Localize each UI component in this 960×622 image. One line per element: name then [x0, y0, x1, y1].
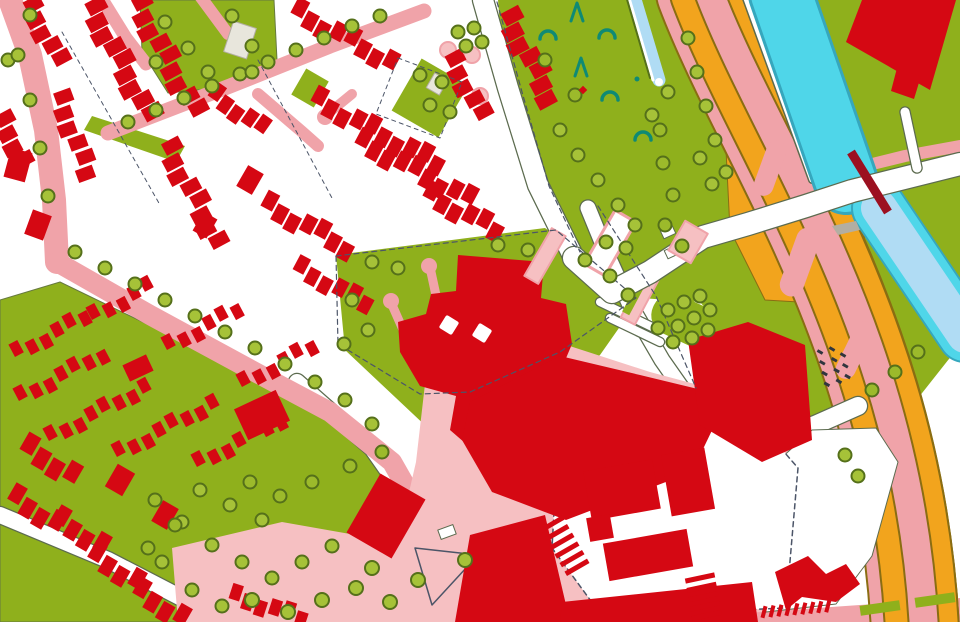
tree-icon: [246, 40, 259, 53]
tree-icon: [346, 294, 359, 307]
tree-icon: [346, 20, 359, 33]
tree-icon: [344, 460, 357, 473]
tree-icon: [24, 9, 37, 22]
tree-icon: [129, 278, 142, 291]
tree-icon: [366, 418, 379, 431]
tree-icon: [309, 376, 322, 389]
tree-icon: [219, 326, 232, 339]
tree-icon: [554, 124, 567, 137]
tree-icon: [411, 573, 425, 587]
tree-icon: [652, 322, 665, 335]
tree-icon: [579, 254, 592, 267]
tree-icon: [206, 539, 219, 552]
tree-icon: [159, 294, 172, 307]
canal-shape: [655, 78, 663, 86]
tree-icon: [694, 290, 707, 303]
tree-icon: [296, 556, 309, 569]
tree-icon: [444, 106, 457, 119]
pink-roads-shape: [421, 258, 437, 274]
tree-icon: [194, 484, 207, 497]
tree-icon: [69, 246, 82, 259]
tree-icon: [24, 94, 37, 107]
tree-icon: [274, 490, 287, 503]
tree-icon: [224, 499, 237, 512]
tree-icon: [704, 304, 717, 317]
tree-icon: [620, 242, 633, 255]
tree-icon: [318, 32, 331, 45]
tree-icon: [326, 540, 339, 553]
tree-icon: [150, 104, 163, 117]
tree-icon: [122, 116, 135, 129]
tree-icon: [244, 476, 257, 489]
tree-icon: [646, 109, 659, 122]
tree-icon: [374, 10, 387, 23]
tree-icon: [572, 149, 585, 162]
tree-icon: [362, 324, 375, 337]
tree-icon: [236, 556, 249, 569]
tree-icon: [662, 304, 675, 317]
tree-icon: [522, 244, 535, 257]
tree-icon: [178, 92, 191, 105]
tree-icon: [458, 553, 472, 567]
tree-icon: [682, 32, 695, 45]
tree-icon: [676, 240, 689, 253]
tree-icon: [366, 256, 379, 269]
tree-icon: [149, 494, 162, 507]
pink-roads-shape: [383, 293, 399, 309]
tree-icon: [365, 561, 379, 575]
tree-icon: [476, 36, 489, 49]
buildings-inner-shape: [586, 514, 614, 542]
tree-icon: [622, 289, 635, 302]
tree-icon: [436, 76, 449, 89]
tree-icon: [234, 68, 247, 81]
tree-icon: [889, 366, 902, 379]
tree-icon: [281, 605, 295, 619]
tree-icon: [34, 142, 47, 155]
tree-icon: [249, 342, 262, 355]
tree-icon: [315, 593, 329, 607]
tree-icon: [256, 514, 269, 527]
tree-icon: [468, 22, 481, 35]
tree-icon: [657, 157, 670, 170]
tree-icon: [866, 384, 879, 397]
tree-icon: [629, 219, 642, 232]
tree-icon: [686, 332, 699, 345]
map-canvas[interactable]: [0, 0, 960, 622]
tree-icon: [169, 519, 182, 532]
tree-icon: [424, 99, 437, 112]
map-viewport[interactable]: [0, 0, 960, 622]
tree-icon: [852, 470, 865, 483]
tree-icon: [12, 49, 25, 62]
tree-icon: [709, 134, 722, 147]
tree-icon: [186, 584, 199, 597]
tree-icon: [216, 600, 229, 613]
tree-icon: [245, 593, 259, 607]
tree-icon: [654, 124, 667, 137]
tree-icon: [592, 174, 605, 187]
tree-icon: [672, 320, 685, 333]
tree-icon: [306, 476, 319, 489]
tree-icon: [612, 199, 625, 212]
tree-icon: [678, 296, 691, 309]
tree-icon: [290, 44, 303, 57]
tree-icon: [659, 219, 672, 232]
tree-icon: [262, 56, 275, 69]
tree-icon: [662, 86, 675, 99]
tree-icon: [150, 56, 163, 69]
tree-icon: [667, 189, 680, 202]
tree-icon: [688, 312, 701, 325]
tree-icon: [492, 239, 505, 252]
tree-icon: [414, 69, 427, 82]
tree-icon: [383, 595, 397, 609]
tree-icon: [266, 572, 279, 585]
tree-icon: [460, 40, 473, 53]
tree-icon: [720, 166, 733, 179]
tree-icon: [706, 178, 719, 191]
tree-icon: [142, 542, 155, 555]
tree-icon: [349, 581, 363, 595]
tree-icon: [694, 152, 707, 165]
tree-icon: [539, 54, 552, 67]
tree-icon: [156, 556, 169, 569]
tree-icon: [839, 449, 852, 462]
tree-icon: [189, 310, 202, 323]
tree-icon: [392, 262, 405, 275]
tree-icon: [604, 270, 617, 283]
tree-icon: [246, 66, 259, 79]
tree-icon: [42, 190, 55, 203]
tree-icon: [202, 66, 215, 79]
park-symbols-shape: [635, 77, 640, 82]
tree-icon: [452, 26, 465, 39]
tree-icon: [600, 236, 613, 249]
tree-icon: [159, 16, 172, 29]
tree-icon: [339, 394, 352, 407]
tree-icon: [691, 66, 704, 79]
tree-icon: [702, 324, 715, 337]
tree-icon: [182, 42, 195, 55]
tree-icon: [376, 446, 389, 459]
tree-icon: [206, 80, 219, 93]
tree-icon: [226, 10, 239, 23]
tree-icon: [700, 100, 713, 113]
tree-icon: [99, 262, 112, 275]
tree-icon: [338, 338, 351, 351]
tree-icon: [667, 336, 680, 349]
tree-icon: [279, 358, 292, 371]
tree-icon: [912, 346, 925, 359]
